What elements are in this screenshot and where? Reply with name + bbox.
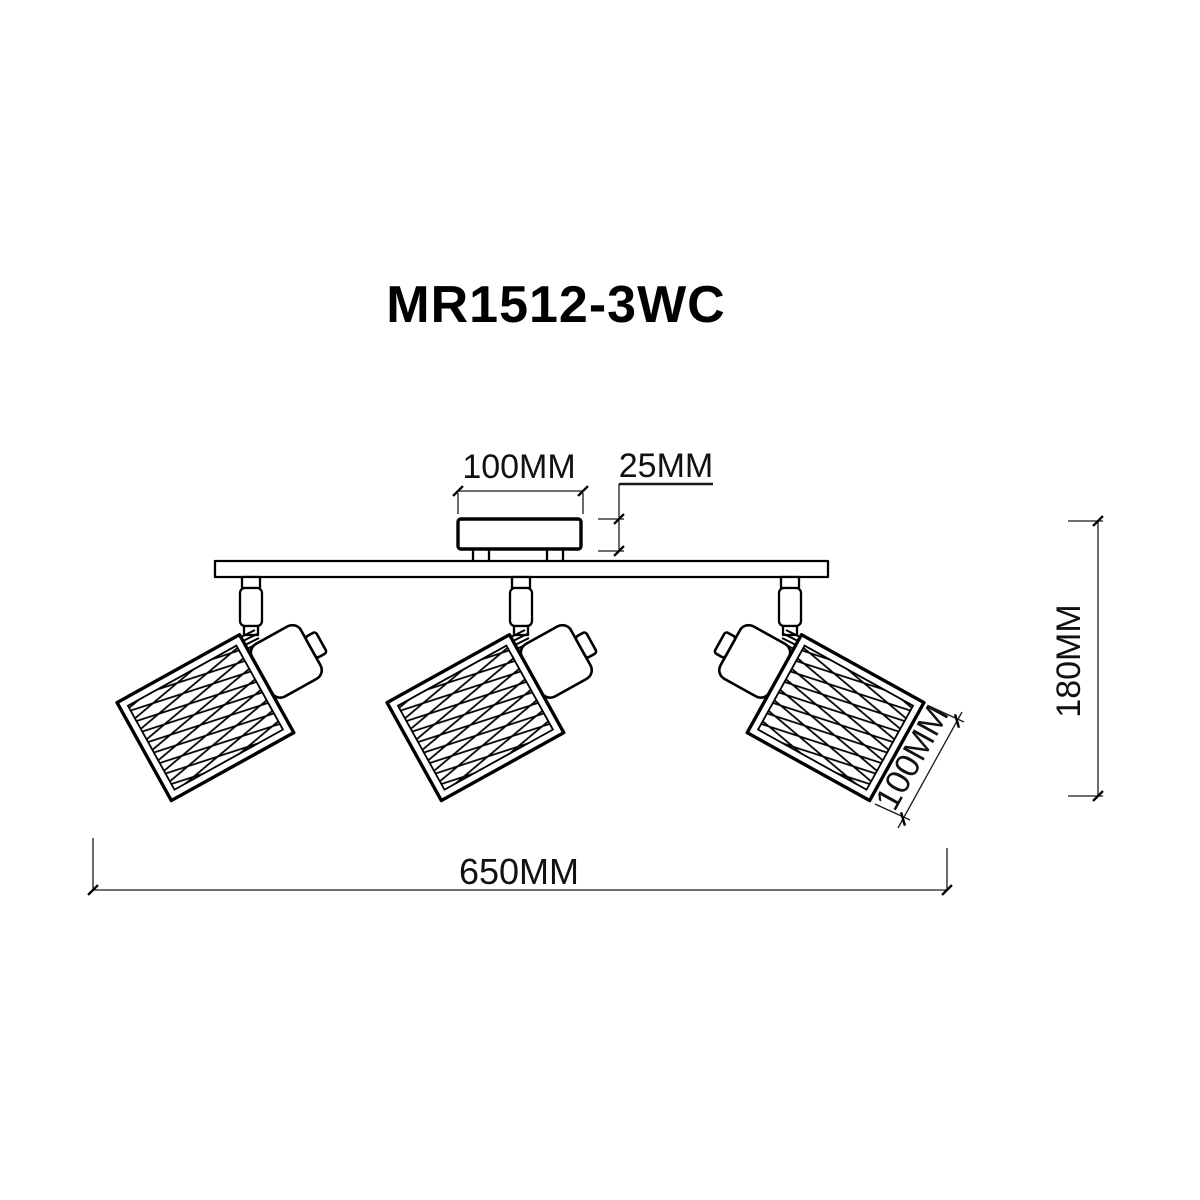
dim-canopy-width: 100MM [453,448,588,514]
technical-drawing-page: MR1512-3WC 100MM 25MM [0,0,1200,1200]
lamp-stem-right [779,577,801,635]
dim-overall-width: 650MM [88,838,952,895]
dim-fixture-height: 180MM [1050,516,1103,801]
drawing-canvas: MR1512-3WC 100MM 25MM [0,0,1200,1200]
ceiling-canopy [458,519,581,549]
mounting-bar [215,561,828,577]
dim-canopy-height: 25MM [598,447,713,556]
dim-canopy-height-label: 25MM [619,447,713,485]
lamp-stem-left [240,577,262,635]
lamp-head-left [117,602,353,801]
dim-fixture-height-label: 180MM [1050,604,1088,717]
dim-overall-width-label: 650MM [459,851,579,892]
lamp-head-middle [387,602,623,801]
dim-canopy-width-label: 100MM [462,448,575,486]
lamp-stem-middle [510,577,532,635]
product-title: MR1512-3WC [386,276,725,334]
